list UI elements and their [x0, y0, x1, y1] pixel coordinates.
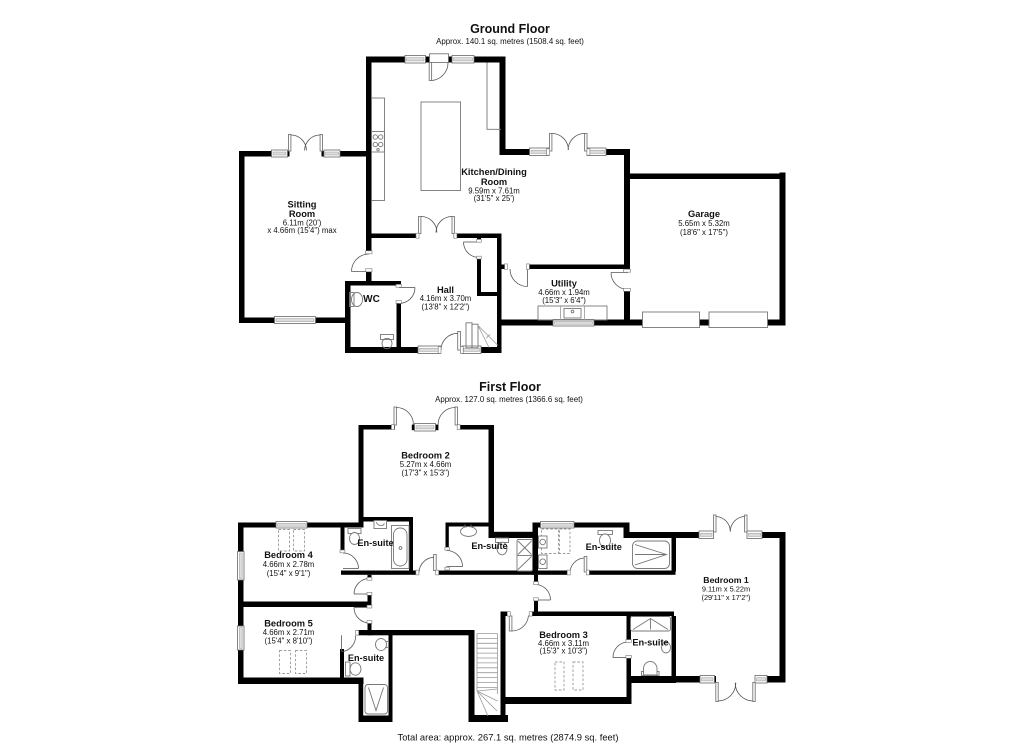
svg-text:(31'5" x 25'): (31'5" x 25') — [474, 194, 515, 203]
svg-text:4.66m x 2.78m: 4.66m x 2.78m — [263, 560, 315, 569]
svg-text:(13'8" x 12'2"): (13'8" x 12'2") — [422, 303, 470, 312]
svg-text:Bedroom 5: Bedroom 5 — [264, 619, 313, 629]
svg-text:En-suite: En-suite — [348, 653, 384, 663]
svg-text:Approx. 127.0 sq. metres (1366: Approx. 127.0 sq. metres (1366.6 sq. fee… — [435, 395, 583, 404]
svg-text:5.65m x 5.32m: 5.65m x 5.32m — [678, 219, 730, 228]
svg-text:WC: WC — [363, 294, 380, 305]
svg-text:(15'3" x 10'3"): (15'3" x 10'3") — [540, 647, 588, 656]
svg-text:Bedroom 1: Bedroom 1 — [703, 575, 749, 585]
svg-text:Bedroom 2: Bedroom 2 — [401, 451, 450, 461]
svg-text:(15'3" x 6'4"): (15'3" x 6'4") — [542, 296, 586, 305]
svg-text:(18'6" x 17'5"): (18'6" x 17'5") — [680, 228, 728, 237]
svg-text:(15'4" x 9'1"): (15'4" x 9'1") — [267, 569, 311, 578]
svg-text:En-suite: En-suite — [632, 638, 668, 648]
svg-text:x 4.66m (15'4") max: x 4.66m (15'4") max — [267, 226, 336, 235]
svg-text:En-suite: En-suite — [357, 538, 393, 548]
svg-text:Sitting: Sitting — [288, 200, 317, 210]
svg-text:Kitchen/Dining: Kitchen/Dining — [461, 167, 527, 177]
svg-text:En-suite: En-suite — [471, 541, 507, 551]
svg-text:Ground Floor: Ground Floor — [470, 22, 550, 36]
svg-text:(17'3" x 15'3"): (17'3" x 15'3") — [402, 468, 450, 477]
svg-text:Bedroom 4: Bedroom 4 — [264, 550, 313, 560]
svg-text:(29'11" x 17'2"): (29'11" x 17'2") — [701, 593, 750, 602]
svg-text:Total area: approx. 267.1 sq.: Total area: approx. 267.1 sq. metres (28… — [398, 732, 619, 743]
svg-text:En-suite: En-suite — [586, 542, 622, 552]
svg-text:Garage: Garage — [688, 209, 720, 219]
svg-text:First Floor: First Floor — [479, 380, 541, 394]
svg-text:(15'4" x 8'10"): (15'4" x 8'10") — [265, 637, 313, 646]
svg-text:Approx. 140.1 sq. metres (1508: Approx. 140.1 sq. metres (1508.4 sq. fee… — [436, 37, 584, 46]
svg-text:Utility: Utility — [551, 279, 578, 289]
